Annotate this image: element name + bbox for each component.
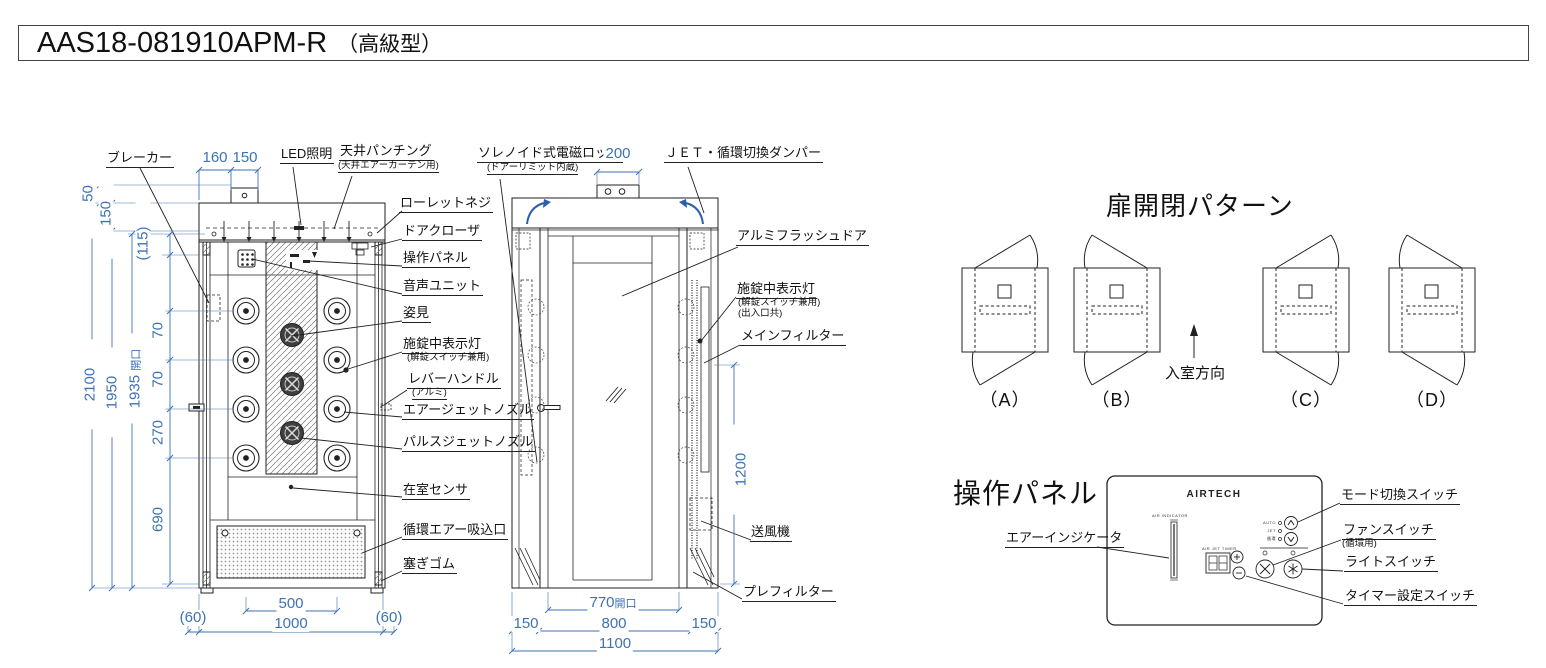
label-knurled-screw: ローレットネジ (399, 196, 493, 213)
dim-1100: 1100 (597, 636, 633, 652)
dim-200: 200 (603, 146, 632, 162)
label-main-filter: メインフィルター (740, 329, 846, 346)
mode-up-button (1285, 517, 1298, 530)
label-aluminum-flush-door: アルミフラッシュドア (736, 229, 869, 246)
label-plug-rubber: 塞ぎゴム (402, 557, 457, 574)
label-lock-lamp-side-sub1: (解錠スイッチ兼用) (738, 298, 820, 308)
label-solenoid-lock-sub: (ドアーリミット内蔵) (487, 163, 578, 175)
label-mode-switch: モード切換スイッチ (1340, 488, 1460, 505)
airtech-logo: AIRTECH (1164, 489, 1264, 500)
dim-60-right: (60) (374, 610, 405, 626)
label-voice-unit: 音声ユニット (402, 279, 483, 296)
dim-690: 690 (151, 475, 166, 565)
dim-800: 800 (599, 616, 628, 632)
timer-minus-button (1233, 567, 1245, 579)
side-view-leaders (500, 167, 751, 599)
tiny-mode-jet: JET (1248, 529, 1276, 533)
dim-150-top: 150 (230, 150, 259, 166)
label-ceiling-punching-sub: (天井エアーカーテン用) (338, 161, 439, 173)
fan-button (1256, 551, 1274, 578)
door-pattern-b (1074, 235, 1160, 385)
entry-direction-label: 入室方向 (1165, 362, 1225, 383)
label-occupancy-sensor: 在室センサ (402, 483, 470, 500)
model-grade: （高級型） (337, 28, 442, 58)
dim-1935-opening: 1935 開口 (128, 334, 145, 424)
label-breaker: ブレーカー (106, 151, 174, 168)
label-return-air-inlet: 循環エアー吸込口 (402, 523, 508, 540)
dim-770-opening: 770開口 (587, 595, 638, 611)
tiny-air-indicator-text: AIR INDICATOR (1152, 514, 1188, 518)
dim-500: 500 (276, 596, 305, 612)
label-fan-switch-sub: (循環用) (1342, 539, 1377, 549)
model-number: AAS18-081910APM-R (37, 27, 327, 60)
dim-150-bottom-right: 150 (689, 616, 718, 632)
label-pre-filter: プレフィルター (742, 585, 836, 602)
label-pulse-jet-nozzle: パルスジェットノズル (402, 435, 535, 452)
dim-1950: 1950 (105, 348, 120, 438)
pattern-c-label: （C） (1280, 386, 1332, 412)
label-timer-switch: タイマー設定スイッチ (1344, 589, 1477, 606)
label-blower: 送風機 (750, 525, 792, 542)
label-door-closer: ドアクローザ (402, 224, 482, 241)
dim-115: (115) (136, 199, 151, 289)
label-light-switch: ライトスイッチ (1344, 555, 1438, 572)
dim-160: 160 (200, 150, 229, 166)
label-solenoid-lock: ソレノイド式電磁ロック (477, 146, 623, 163)
label-lever-handle-sub: (アルミ) (412, 388, 447, 400)
drawing-sheet: AAS18-081910APM-R （高級型） ブレーカー LED照明 天井パン… (0, 0, 1546, 668)
door-pattern-a (962, 235, 1048, 385)
dim-1200: 1200 (734, 425, 749, 515)
side-view-drawing (512, 185, 718, 588)
door-patterns-heading: 扉開閉パターン (1106, 186, 1294, 223)
control-panel-heading: 操作パネル (953, 472, 1098, 512)
dim-150-bottom-left: 150 (511, 616, 540, 632)
label-air-indicator: エアーインジケータ (1005, 531, 1124, 548)
label-ceiling-punching: 天井パンチング (339, 144, 434, 161)
dim-270-c: 270 (151, 388, 166, 478)
dim-50: 50 (81, 149, 96, 239)
timer-plus-button (1231, 551, 1243, 563)
pattern-b-label: （B） (1091, 386, 1142, 412)
tiny-mode-auto: AUTO (1248, 521, 1276, 525)
label-control-panel: 操作パネル (402, 251, 470, 268)
pattern-d-label: （D） (1406, 386, 1458, 412)
label-damper: ＪＥＴ・循環切換ダンパー (664, 146, 823, 163)
dim-2100: 2100 (83, 340, 98, 430)
pattern-a-label: （A） (979, 386, 1030, 412)
mode-down-button (1285, 533, 1298, 546)
label-led-light: LED照明 (280, 147, 334, 164)
title-block: AAS18-081910APM-R （高級型） (18, 25, 1529, 61)
door-pattern-c (1263, 235, 1349, 385)
entry-direction-arrow (1190, 324, 1198, 358)
label-air-jet-nozzle: エアージェットノズル (402, 403, 534, 420)
label-mirror: 姿見 (402, 306, 431, 323)
dim-150-left: 150 (99, 169, 114, 259)
label-lock-lamp-side-sub2: (出入口共) (738, 309, 782, 319)
label-lock-lamp-front-sub: (解錠スイッチ兼用) (407, 353, 489, 363)
tiny-timer-text: AIR JET TIMER (1202, 547, 1237, 551)
door-pattern-d (1389, 235, 1475, 385)
dim-1000: 1000 (272, 616, 309, 632)
control-panel-leaders (1097, 503, 1343, 604)
tiny-mode-circ: 循環 (1248, 537, 1276, 541)
dim-60-left: (60) (178, 610, 209, 626)
front-view-drawing (189, 188, 391, 593)
